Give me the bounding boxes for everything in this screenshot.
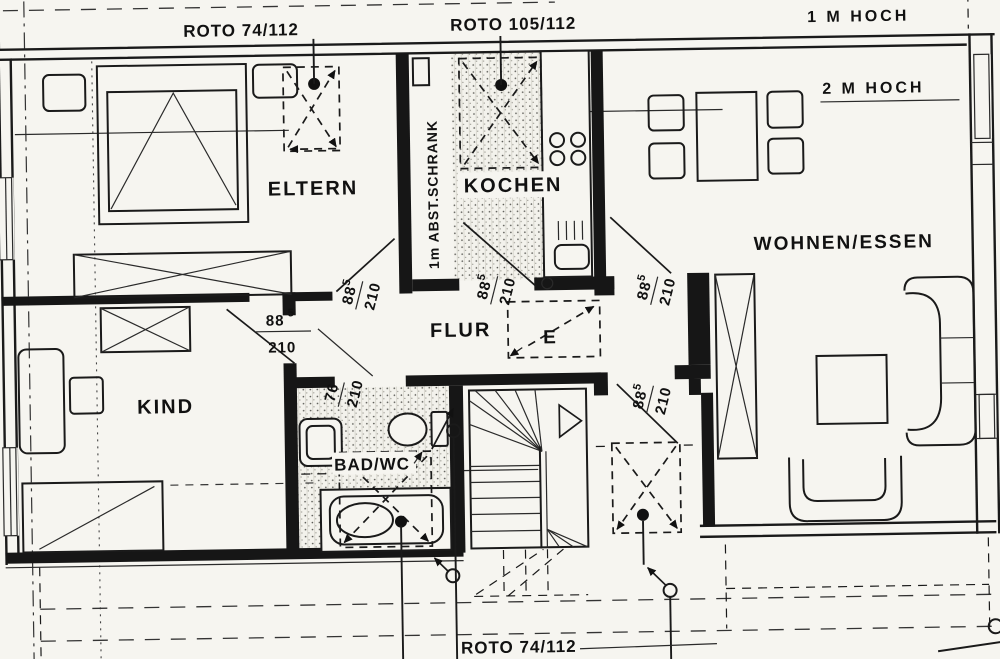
dim-label-kind-door: 88 5 210 [256, 306, 373, 378]
window-right-upper [970, 54, 994, 164]
room-kind [18, 307, 194, 553]
single-bed [18, 349, 65, 454]
room-label-bad: BAD/WC [334, 454, 410, 474]
dim-label-wohnen-top-door: 88 5 210 [630, 270, 679, 311]
label-roto-bottom: ROTO 74/112 [461, 637, 577, 658]
sofa-right [904, 277, 976, 446]
svg-text:210: 210 [268, 339, 296, 356]
room-label-kind: KIND [137, 396, 194, 419]
stairs-hidden-below [473, 549, 588, 597]
room-label-wohnen: WOHNEN/ESSEN [754, 231, 935, 255]
label-2m-hoch: 2 M HOCH [822, 79, 924, 98]
dim-label-eltern-door: 88 5 210 [335, 274, 384, 315]
schrank-pier [413, 58, 429, 85]
label-1m-hoch: 1 M HOCH [807, 8, 909, 27]
dining-chair [767, 91, 803, 128]
window-left-eltern [0, 178, 15, 260]
kitchen-counter [541, 51, 593, 278]
toilet [388, 412, 448, 447]
room-label-kochen: KOCHEN [464, 174, 563, 198]
svg-text:88: 88 [266, 312, 285, 329]
coffee-table [816, 355, 887, 424]
svg-text:210: 210 [496, 275, 519, 306]
dining-chair [768, 138, 804, 174]
desk [22, 481, 163, 552]
dining-table [696, 92, 757, 181]
room-eltern [43, 63, 301, 298]
door-wohnen-top [610, 216, 671, 274]
room-kochen [541, 51, 593, 278]
dresser [74, 251, 292, 297]
label-roto-top-left: ROTO 74/112 [183, 20, 299, 41]
svg-text:210: 210 [656, 276, 679, 307]
sofa-bottom [789, 456, 902, 522]
room-label-eltern: ELTERN [268, 177, 359, 200]
roof-window-landing [596, 442, 699, 534]
entry-marker-box: E [508, 300, 601, 357]
stair-direction-arrow [559, 405, 581, 437]
dining-chair [648, 95, 684, 131]
svg-text:210: 210 [652, 385, 675, 416]
label-abstellschrank: 1m ABST.SCHRANK [424, 120, 442, 269]
floor-plan-drawing: E 88 5 210 88 5 210 88 5 210 88 5 210 76… [0, 0, 1000, 659]
shelf-unit [715, 274, 757, 459]
side-table [70, 377, 104, 414]
dining-chair [649, 143, 685, 179]
label-roto-top-mid: ROTO 105/112 [450, 14, 576, 35]
nightstand-right [253, 64, 298, 98]
entry-marker-label: E [543, 327, 558, 348]
wardrobe [101, 307, 191, 352]
double-bed [97, 64, 248, 224]
svg-text:210: 210 [361, 281, 384, 312]
room-label-flur: FLUR [430, 319, 492, 342]
window-left-kind [2, 448, 19, 536]
stairs [469, 389, 589, 597]
scan-rotation-group: E 88 5 210 88 5 210 88 5 210 88 5 210 76… [0, 0, 1000, 659]
dim-label-wohnen-bottom-door: 88 5 210 [626, 379, 675, 420]
svg-text:5: 5 [288, 307, 294, 319]
nightstand-left [43, 74, 86, 111]
window-right-lower [975, 394, 998, 438]
